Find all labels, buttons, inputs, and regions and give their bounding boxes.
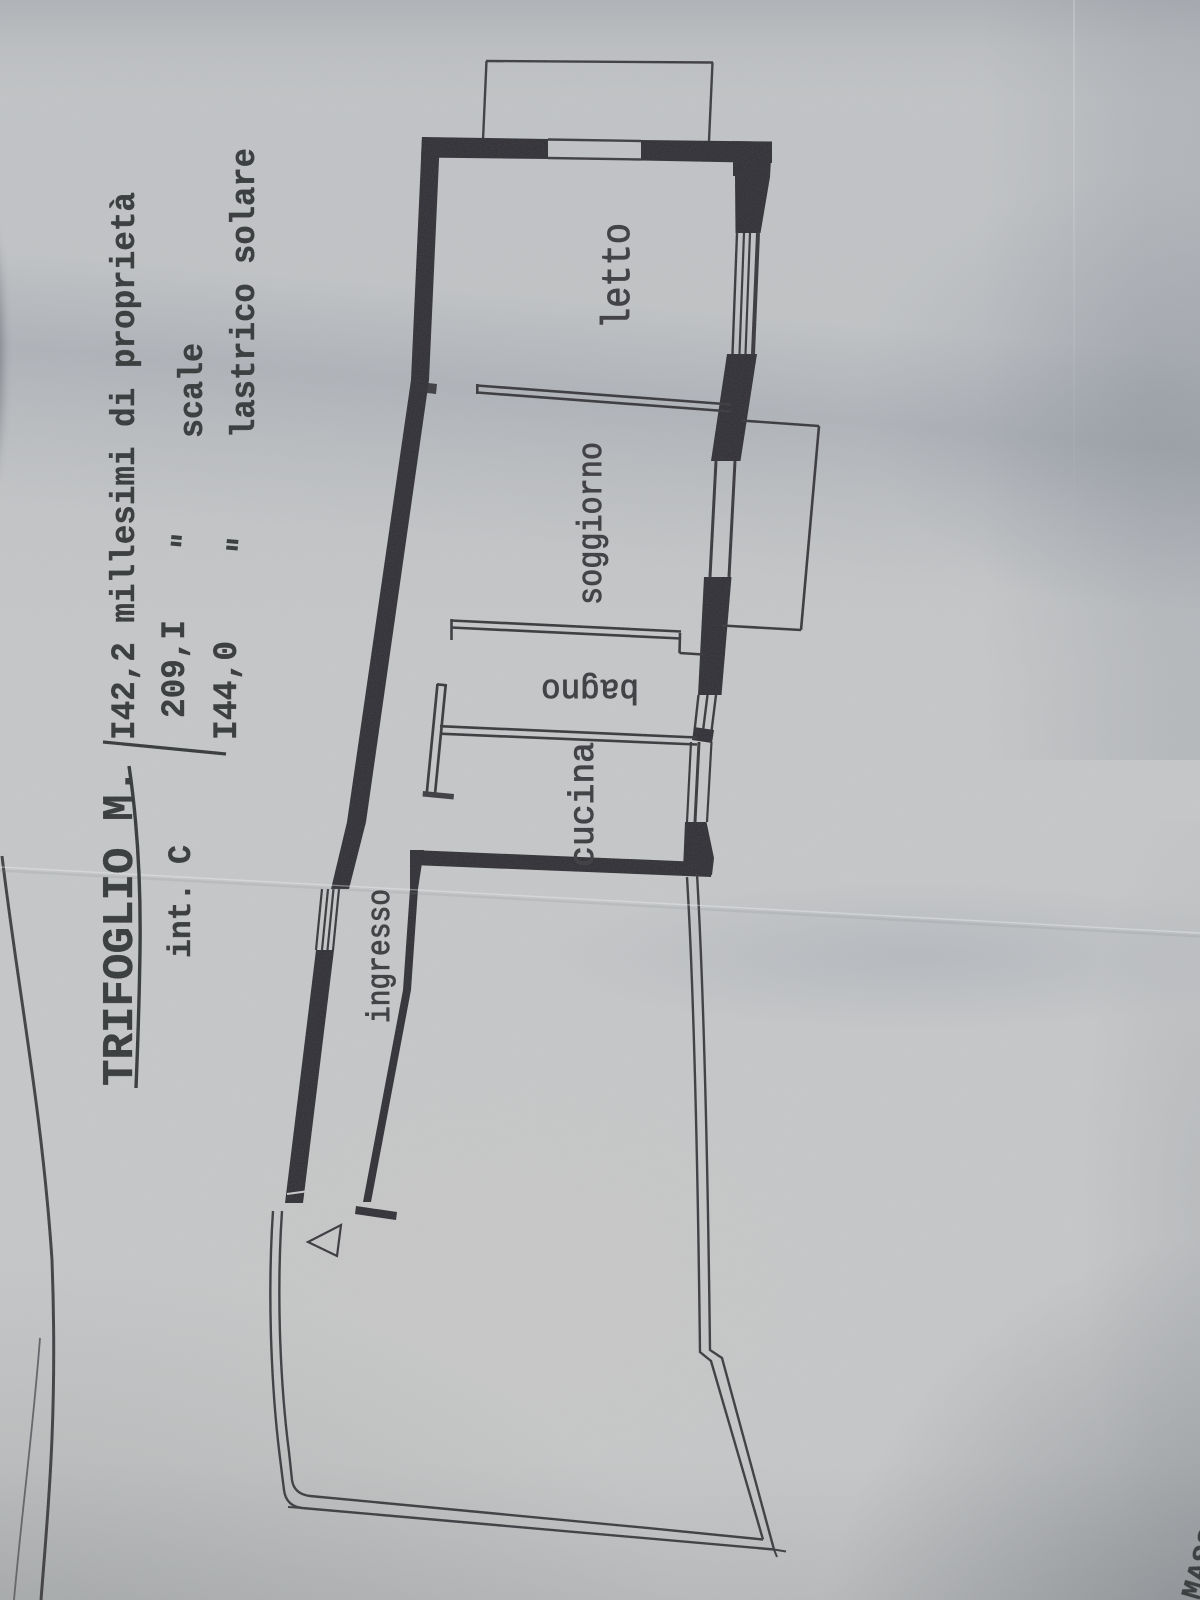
svg-text:int. C: int. C — [163, 845, 200, 958]
svg-text:I.MASSO.: I.MASSO. — [1166, 1488, 1200, 1600]
svg-text:I44,0: I44,0 — [209, 641, 247, 740]
svg-text:I42,2 millesimi di proprietà: I42,2 millesimi di proprietà — [107, 192, 145, 740]
svg-text:scale: scale — [175, 343, 213, 438]
svg-text:209,I: 209,I — [157, 620, 195, 718]
svg-text:TRIFOGLIO M.: TRIFOGLIO M. — [96, 768, 146, 1086]
svg-text:ingresso: ingresso — [362, 889, 399, 1023]
svg-text:lastrico solare: lastrico solare — [227, 148, 265, 438]
svg-text:soggiorno: soggiorno — [574, 442, 612, 605]
svg-text:cucina: cucina — [564, 742, 604, 867]
svg-text:letto: letto — [597, 223, 642, 329]
svg-text:bagno: bagno — [541, 669, 639, 707]
